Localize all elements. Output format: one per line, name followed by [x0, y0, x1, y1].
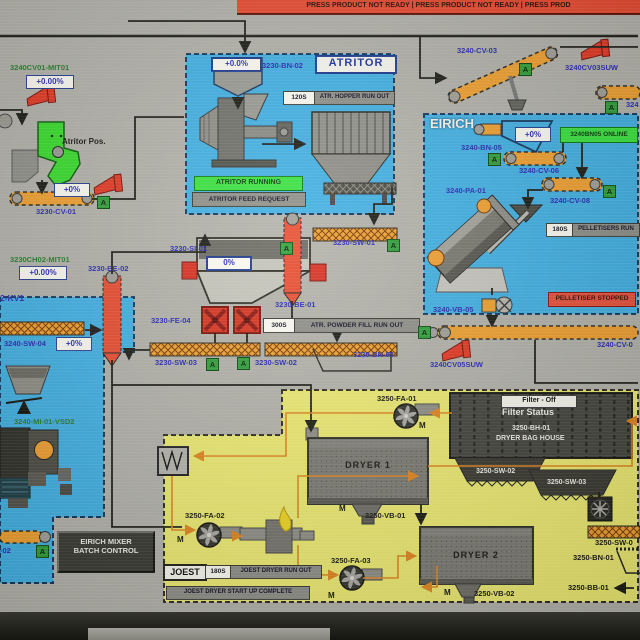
label-be02: 3230-BE-02 — [88, 264, 128, 273]
value-mit01[interactable]: +0.00% — [26, 75, 74, 89]
status-atritor-feed-request: ATRITOR FEED REQUEST — [192, 192, 306, 207]
msg-pelletiser-runout: PELLETISERS RUN — [572, 223, 640, 237]
motor-indicator-fa02: M — [177, 535, 184, 544]
batch-button-line2: BATCH CONTROL — [59, 546, 153, 555]
chute-icon-left — [93, 174, 123, 195]
alarm-banner[interactable]: PRESS PRODUCT NOT READY | PRESS PRODUCT … — [237, 0, 640, 15]
motor-indicator-fa01: M — [419, 421, 426, 430]
bucket-elevator-be01 — [284, 213, 301, 305]
label-ch02: 3230CH02-MIT01 — [10, 255, 70, 264]
value-ch02[interactable]: +0.00% — [19, 266, 67, 280]
auto-indicator-cv03[interactable]: A — [519, 63, 532, 76]
value-si01[interactable]: 0% — [206, 256, 252, 271]
bn05-actuator-cap — [474, 125, 484, 135]
label-sw01: 3230-SW-01 — [333, 238, 375, 247]
label-dryer2: DRYER 2 — [426, 550, 526, 560]
motor-indicator-fa03: M — [328, 591, 335, 600]
motor-indicator-vb02: M — [444, 588, 451, 597]
label-cv04-partial: 324 — [626, 100, 639, 109]
screw-sw03 — [150, 343, 260, 356]
auto-indicator-cv05[interactable]: A — [418, 326, 431, 339]
label-bn05: 3240-BN-05 — [461, 143, 502, 152]
label-vb02: 3250-VB-02 — [474, 589, 514, 598]
label-cv01: 3230-CV-01 — [36, 207, 76, 216]
fan-fa02-icon[interactable] — [197, 523, 221, 547]
label-sw02: 3230-SW-02 — [255, 358, 297, 367]
label-3250sw02: 3250-SW-02 — [476, 468, 515, 475]
value-bn02[interactable]: +0.0% — [211, 57, 262, 72]
label-mi01: 3240-MI-01-VSD2 — [14, 417, 74, 426]
label-fe04: 3230-FE-04 — [151, 316, 191, 325]
label-pa01: 3240-PA-01 — [446, 186, 486, 195]
conveyor-strut — [510, 76, 517, 100]
conveyor-cv08 — [542, 178, 602, 191]
conveyor-foot — [508, 100, 526, 110]
label-be01: 3230-BE-01 — [275, 300, 315, 309]
auto-indicator-be02[interactable]: A — [280, 242, 293, 255]
label-3250bn01: 3250-BN-01 — [573, 553, 614, 562]
auto-indicator-cv06[interactable]: A — [488, 153, 501, 166]
fan-fa03-icon[interactable] — [340, 566, 364, 590]
msg-powder-fill-runout: ATR. POWDER FILL RUN OUT — [294, 318, 420, 333]
monitor-stand — [88, 628, 330, 640]
fan-fa01-icon[interactable] — [394, 404, 418, 428]
msg-joest-startup: JOEST DRYER START UP COMPLETE — [166, 586, 310, 600]
atritor-pos-valve-icon[interactable] — [12, 122, 80, 186]
label-filter-status: Filter Status — [502, 407, 554, 417]
auto-indicator-cv02[interactable]: A — [36, 545, 49, 558]
status-pelletiser-stopped: PELLETISER STOPPED — [548, 292, 636, 307]
label-sw03: 3230-SW-03 — [155, 358, 197, 367]
auto-indicator-cv04[interactable]: A — [605, 101, 618, 114]
label-fa02: 3250-FA-02 — [185, 511, 225, 520]
label-vb01: 3250-VB-01 — [365, 511, 405, 520]
label-dryer1: DRYER 1 — [318, 460, 418, 470]
auto-indicator-sw03[interactable]: A — [206, 358, 219, 371]
eirich-title: EIRICH — [430, 116, 474, 131]
label-bag-house: DRYER BAG HOUSE — [496, 435, 565, 442]
timer-powder-fill: 300S — [263, 318, 295, 333]
motor-indicator-vb01: M — [339, 504, 346, 513]
timer-atritor: 120S — [283, 91, 315, 105]
rotary-valve-fe04a[interactable] — [202, 307, 228, 333]
screw-sw04 — [0, 322, 84, 335]
label-cv08: 3240-CV-08 — [550, 196, 590, 205]
batch-button-line1: EIRICH MIXER — [59, 537, 153, 546]
label-si01: 3230-SI-01 — [170, 244, 207, 253]
label-cv03suw: 3240CV03SUW — [565, 63, 618, 72]
atritor-runout-hopper — [312, 112, 396, 205]
pulley-icon — [0, 114, 12, 128]
hmi-screen: PRESS PRODUCT NOT READY | PRESS PRODUCT … — [0, 0, 640, 640]
atritor-title: ATRITOR — [315, 55, 397, 74]
label-bn02: 3230-BN-02 — [262, 61, 303, 70]
rotary-valve-fe04b[interactable] — [234, 307, 260, 333]
status-bn05-online: 3240BN05 ONLINE — [560, 127, 638, 143]
label-cv05-partial: 3240-CV-0 — [597, 340, 633, 349]
auto-indicator-cv01[interactable]: A — [97, 196, 110, 209]
label-atritor-pos: Atritor Pos. — [62, 137, 106, 146]
bucket-elevator-be02 — [103, 271, 121, 366]
label-fa03: 3250-FA-03 — [331, 556, 371, 565]
label-vb05: 3240-VB-05 — [433, 305, 473, 314]
auto-indicator-sw02[interactable]: A — [237, 357, 250, 370]
value-cv01[interactable]: +0% — [54, 183, 90, 197]
conveyor-cv06 — [504, 152, 566, 165]
msg-joest-runout: JOEST DRYER RUN OUT — [230, 565, 322, 579]
rotary-valve-baghouse-icon — [588, 497, 612, 521]
auto-indicator-cv08[interactable]: A — [603, 185, 616, 198]
eirich-mixer-batch-control-button[interactable]: EIRICH MIXER BATCH CONTROL — [57, 531, 155, 573]
label-cv03: 3240-CV-03 — [457, 46, 497, 55]
value-bn05[interactable]: +0% — [515, 127, 551, 142]
chute-icon-cv05suw — [441, 340, 471, 361]
label-sw04: 3240-SW-04 — [4, 339, 46, 348]
screw-3250sw01 — [588, 526, 640, 538]
value-sw04[interactable]: +0% — [56, 337, 92, 351]
label-kv1: 2-KV1 — [0, 293, 24, 303]
label-cv06: 3240-CV-06 — [519, 166, 559, 175]
heat-exchanger-icon — [158, 447, 188, 475]
label-cv02-partial: -02 — [0, 546, 11, 555]
conveyor-cv04 — [596, 86, 640, 99]
label-cv05suw: 3240CV05SUW — [430, 360, 483, 369]
label-fa01: 3250-FA-01 — [377, 394, 417, 403]
msg-atritor-runout: ATR. HOPPER RUN OUT — [314, 91, 395, 105]
label-3250sw03: 3250-SW-03 — [547, 479, 586, 486]
label-bh01: 3250-BH-01 — [512, 425, 550, 432]
status-atritor-running: ATRITOR RUNNING — [194, 176, 303, 191]
chute-icon-cv03suw — [580, 39, 610, 60]
label-bn03: 3230-BN-03 — [353, 350, 394, 359]
timer-joest: 180S — [205, 565, 231, 579]
timer-pelletiser: 180S — [546, 223, 574, 237]
label-3250bb01: 3250-BB-01 — [568, 583, 609, 592]
conveyor-cv02 — [0, 531, 51, 543]
auto-indicator-sw01[interactable]: A — [387, 239, 400, 252]
conveyor-cv05 — [428, 326, 638, 339]
joest-title: JOEST — [163, 564, 207, 581]
label-3250sw01-partial: 3250-SW-0 — [595, 538, 633, 547]
label-mit01: 3240CV01-MIT01 — [10, 63, 69, 72]
